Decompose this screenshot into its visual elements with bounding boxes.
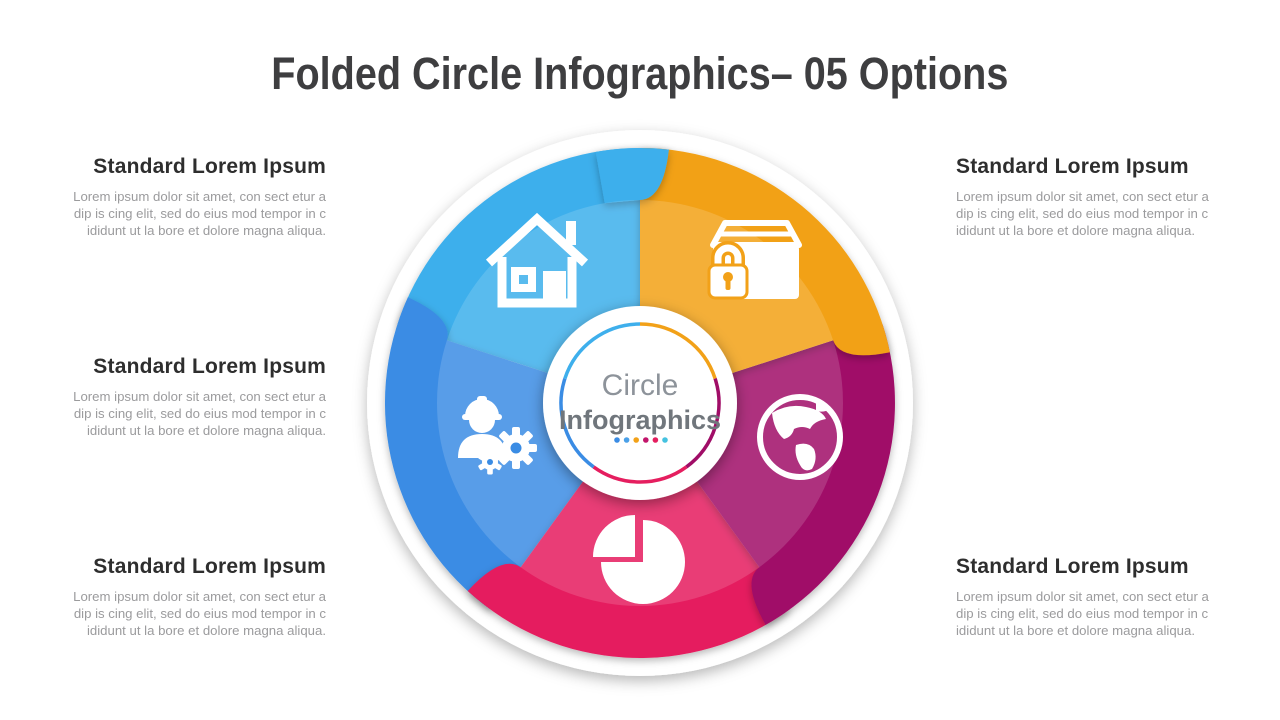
- option-heading: Standard Lorem Ipsum: [56, 555, 326, 579]
- option-heading: Standard Lorem Ipsum: [956, 555, 1226, 579]
- dot: [624, 437, 630, 443]
- option-heading: Standard Lorem Ipsum: [56, 155, 326, 179]
- option-heading: Standard Lorem Ipsum: [56, 355, 326, 379]
- dot: [633, 437, 639, 443]
- option-body: Lorem ipsum dolor sit amet, con sect etu…: [956, 588, 1226, 639]
- option-body: Lorem ipsum dolor sit amet, con sect etu…: [56, 588, 326, 639]
- option-body: Lorem ipsum dolor sit amet, con sect etu…: [956, 188, 1226, 239]
- text-block-top-right: Standard Lorem Ipsum Lorem ipsum dolor s…: [956, 155, 1226, 239]
- secure-package-icon: [709, 223, 799, 299]
- option-body: Lorem ipsum dolor sit amet, con sect etu…: [56, 388, 326, 439]
- gear-large: [495, 427, 537, 469]
- text-block-bottom-left: Standard Lorem Ipsum Lorem ipsum dolor s…: [56, 555, 326, 639]
- dot: [643, 437, 649, 443]
- page-title: Folded Circle Infographics– 05 Options: [0, 48, 1280, 100]
- dot: [662, 437, 668, 443]
- dot: [614, 437, 620, 443]
- folded-circle-diagram: Circle Infographics: [340, 103, 940, 703]
- page-title-text: Folded Circle Infographics– 05 Options: [271, 48, 1008, 100]
- text-block-bottom-right: Standard Lorem Ipsum Lorem ipsum dolor s…: [956, 555, 1226, 639]
- center-title-line1: Circle: [602, 369, 679, 402]
- option-body: Lorem ipsum dolor sit amet, con sect etu…: [56, 188, 326, 239]
- center-title-line2: Infographics: [559, 405, 721, 435]
- text-block-top-left: Standard Lorem Ipsum Lorem ipsum dolor s…: [56, 155, 326, 239]
- dot: [653, 437, 659, 443]
- text-block-middle-left: Standard Lorem Ipsum Lorem ipsum dolor s…: [56, 355, 326, 439]
- slide-canvas: Folded Circle Infographics– 05 Options S…: [0, 0, 1280, 720]
- center-disc: [543, 306, 737, 500]
- option-heading: Standard Lorem Ipsum: [956, 155, 1226, 179]
